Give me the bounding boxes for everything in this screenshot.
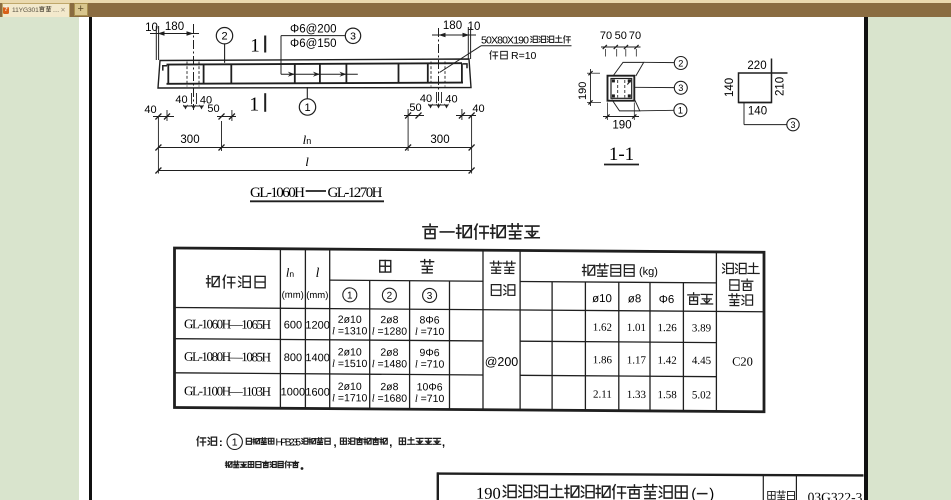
svg-text:180: 180 [443,20,462,32]
svg-text:R=10: R=10 [511,50,537,62]
svg-text:4.45: 4.45 [692,355,712,367]
svg-text:2.11: 2.11 [593,389,612,401]
svg-text:2ø8: 2ø8 [380,381,398,393]
svg-text:l =1480: l =1480 [372,358,407,370]
svg-text:300: 300 [430,134,449,146]
svg-text:(kg): (kg) [639,266,658,278]
svg-text:,: , [389,437,392,449]
svg-text:2ø8: 2ø8 [380,347,398,359]
svg-text:5.02: 5.02 [692,389,711,401]
svg-text:l =1310: l =1310 [332,325,367,337]
svg-text:(mm): (mm) [282,290,304,301]
svg-text:10Φ6: 10Φ6 [417,381,443,393]
svg-text:40: 40 [144,104,156,116]
svg-text:70: 70 [629,30,641,42]
svg-text:50: 50 [615,30,627,42]
svg-text:50: 50 [409,102,421,114]
svg-text:3.89: 3.89 [692,322,712,334]
svg-text:180: 180 [165,21,184,33]
svg-text:1000: 1000 [281,386,305,398]
svg-text:2ø10: 2ø10 [338,381,362,393]
svg-text:l =1680: l =1680 [372,393,407,405]
svg-text:Φ6@200: Φ6@200 [290,24,337,36]
svg-text:1600: 1600 [305,387,329,399]
svg-text:40: 40 [445,94,457,106]
svg-text:1.42: 1.42 [657,355,676,367]
svg-text:(: ( [691,486,696,500]
svg-text:2ø10: 2ø10 [338,346,362,358]
svg-text:l: l [316,265,320,280]
svg-text:190: 190 [577,82,589,100]
svg-text:3: 3 [427,291,433,302]
svg-text:C20: C20 [732,355,753,369]
svg-text:): ) [709,486,714,500]
svg-text:190: 190 [612,120,631,132]
svg-text:50: 50 [207,103,219,115]
svg-text:l =1280: l =1280 [372,326,407,338]
svg-text:1: 1 [678,106,683,116]
svg-text:Φ6: Φ6 [659,294,675,306]
svg-text:1400: 1400 [305,352,329,364]
svg-text:2ø10: 2ø10 [338,314,362,326]
svg-text:HPB235: HPB235 [276,437,302,448]
svg-text:3: 3 [790,120,795,130]
svg-text:1.01: 1.01 [627,322,646,334]
svg-text:3: 3 [350,31,356,43]
svg-text:1: 1 [232,437,238,449]
svg-text:1.86: 1.86 [593,354,613,366]
svg-text:03G322-3: 03G322-3 [808,490,863,500]
svg-text:(mm): (mm) [306,290,328,301]
svg-text:3: 3 [678,83,683,93]
svg-text:1: 1 [250,36,260,57]
svg-text:,: , [334,437,337,449]
svg-text:l =710: l =710 [415,393,445,405]
svg-text:1200: 1200 [305,320,329,332]
svg-text:9Φ6: 9Φ6 [420,347,440,359]
svg-text:ln: ln [286,266,294,280]
svg-text:Φ6@150: Φ6@150 [290,38,337,50]
svg-text::: : [219,437,223,449]
svg-text:1: 1 [304,102,310,114]
svg-text:8Φ6: 8Φ6 [420,314,440,326]
svg-text:2: 2 [387,291,393,302]
svg-text:800: 800 [284,352,302,364]
svg-text:l: l [305,154,309,169]
svg-text:GL-1060H—1065H: GL-1060H—1065H [184,316,271,332]
svg-text:1: 1 [249,94,259,116]
svg-text:1.26: 1.26 [657,322,677,334]
svg-text:l =710: l =710 [415,326,445,338]
svg-text:300: 300 [180,134,199,146]
svg-text:2: 2 [221,31,227,43]
svg-text:190: 190 [476,484,501,500]
svg-text:70: 70 [600,30,612,42]
svg-text:140: 140 [724,78,736,97]
svg-text:ln: ln [303,132,312,147]
svg-text:GL-1270H: GL-1270H [328,185,383,201]
svg-text:220: 220 [747,60,766,72]
svg-text:210: 210 [775,77,787,96]
svg-text:2ø8: 2ø8 [380,314,398,326]
svg-text:,: , [442,437,445,449]
svg-text:1: 1 [347,290,353,301]
svg-text:GL-1080H—1085H: GL-1080H—1085H [184,349,271,365]
svg-text:GL-1100H—1103H: GL-1100H—1103H [184,383,271,399]
svg-text:l =1710: l =1710 [332,392,367,404]
svg-text:1.33: 1.33 [627,389,647,401]
svg-text:l =1510: l =1510 [332,358,367,370]
svg-text:10: 10 [468,21,481,33]
svg-text:ø8: ø8 [628,293,641,305]
svg-text:50X80X190: 50X80X190 [481,35,529,47]
svg-text:1.17: 1.17 [627,354,647,366]
svg-text:@200: @200 [485,355,519,369]
svg-text:2: 2 [678,58,683,68]
svg-text:GL-1060H: GL-1060H [250,185,305,201]
svg-text:1-1: 1-1 [609,144,634,165]
svg-text:1.62: 1.62 [593,322,612,334]
svg-text:40: 40 [420,93,432,105]
svg-text:140: 140 [748,106,767,118]
svg-text:l =710: l =710 [415,358,445,370]
svg-text:600: 600 [284,319,302,331]
svg-text:40: 40 [175,94,187,106]
svg-text:ø10: ø10 [592,293,612,305]
svg-text:1.58: 1.58 [657,389,677,401]
